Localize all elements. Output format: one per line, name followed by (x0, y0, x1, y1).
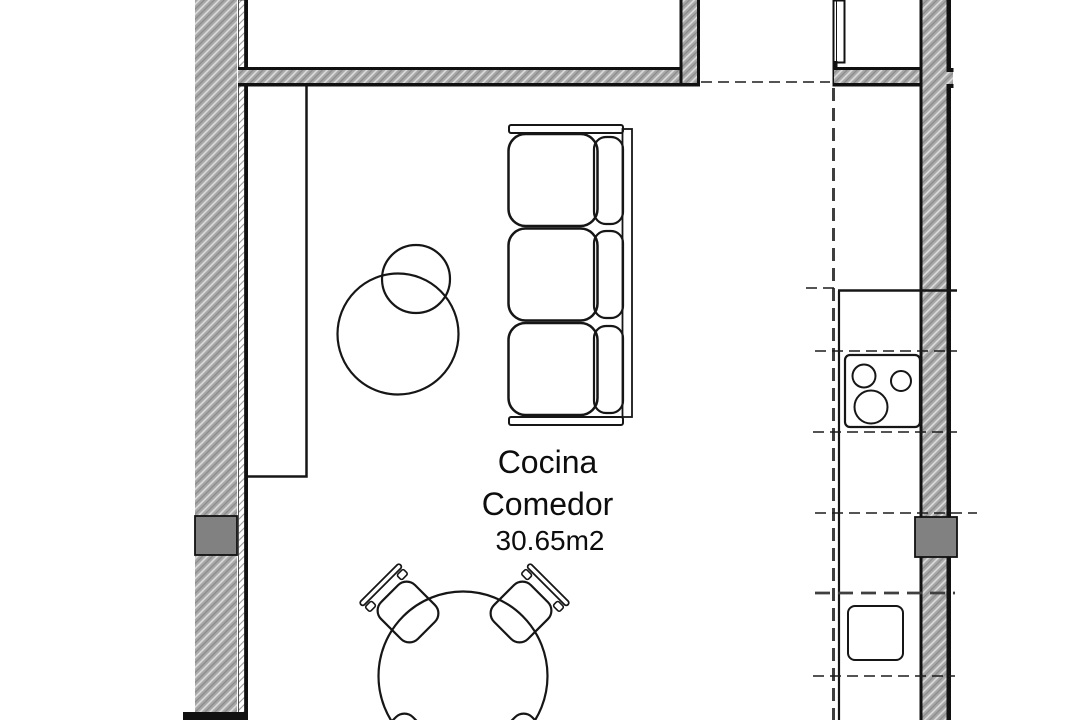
sofa-armrest-top (509, 125, 623, 133)
top-wall-right-segment (833, 67, 924, 87)
partition-stub-hatch (683, 0, 698, 70)
left-wall-liner-strip (239, 0, 245, 713)
top-wall-right-hatch (834, 70, 923, 83)
left-column-marker (195, 516, 237, 555)
top-wall-right-edge-lower (834, 83, 923, 87)
sofa-armrest-bottom (509, 417, 623, 425)
right-wall-stub-cap-lower (947, 84, 954, 88)
right-wall-stub-cap-upper (947, 68, 954, 72)
door-leaf (833, 1, 845, 68)
room-name-line2: Comedor (482, 486, 614, 522)
left-wall-inner-face (245, 0, 249, 713)
right-wall (920, 0, 954, 720)
left-wall-bottom-cap (183, 712, 248, 720)
room-label: Cocina Comedor 30.65m2 (482, 444, 614, 556)
door-leaf-outline (834, 1, 845, 63)
left-wall-hatch (195, 0, 237, 713)
top-wall-edge-upper (238, 67, 700, 70)
floor-plan-canvas: Cocina Comedor 30.65m2 (0, 0, 1084, 720)
top-wall-right-edge-upper (834, 67, 923, 70)
door-jamb-foot (833, 61, 838, 67)
room-area-value: 30.65m2 (496, 525, 605, 556)
right-wall-edge-right (947, 0, 952, 720)
top-wall-hatch (238, 70, 700, 83)
right-wall-hatch (923, 0, 947, 720)
cooktop (845, 355, 920, 427)
right-column-marker (915, 517, 957, 557)
partition-stub-edge-right (697, 0, 700, 84)
right-wall-stub-hatch (947, 72, 954, 84)
partition-stub-edge-left (680, 0, 683, 84)
room-name-line1: Cocina (498, 444, 598, 480)
